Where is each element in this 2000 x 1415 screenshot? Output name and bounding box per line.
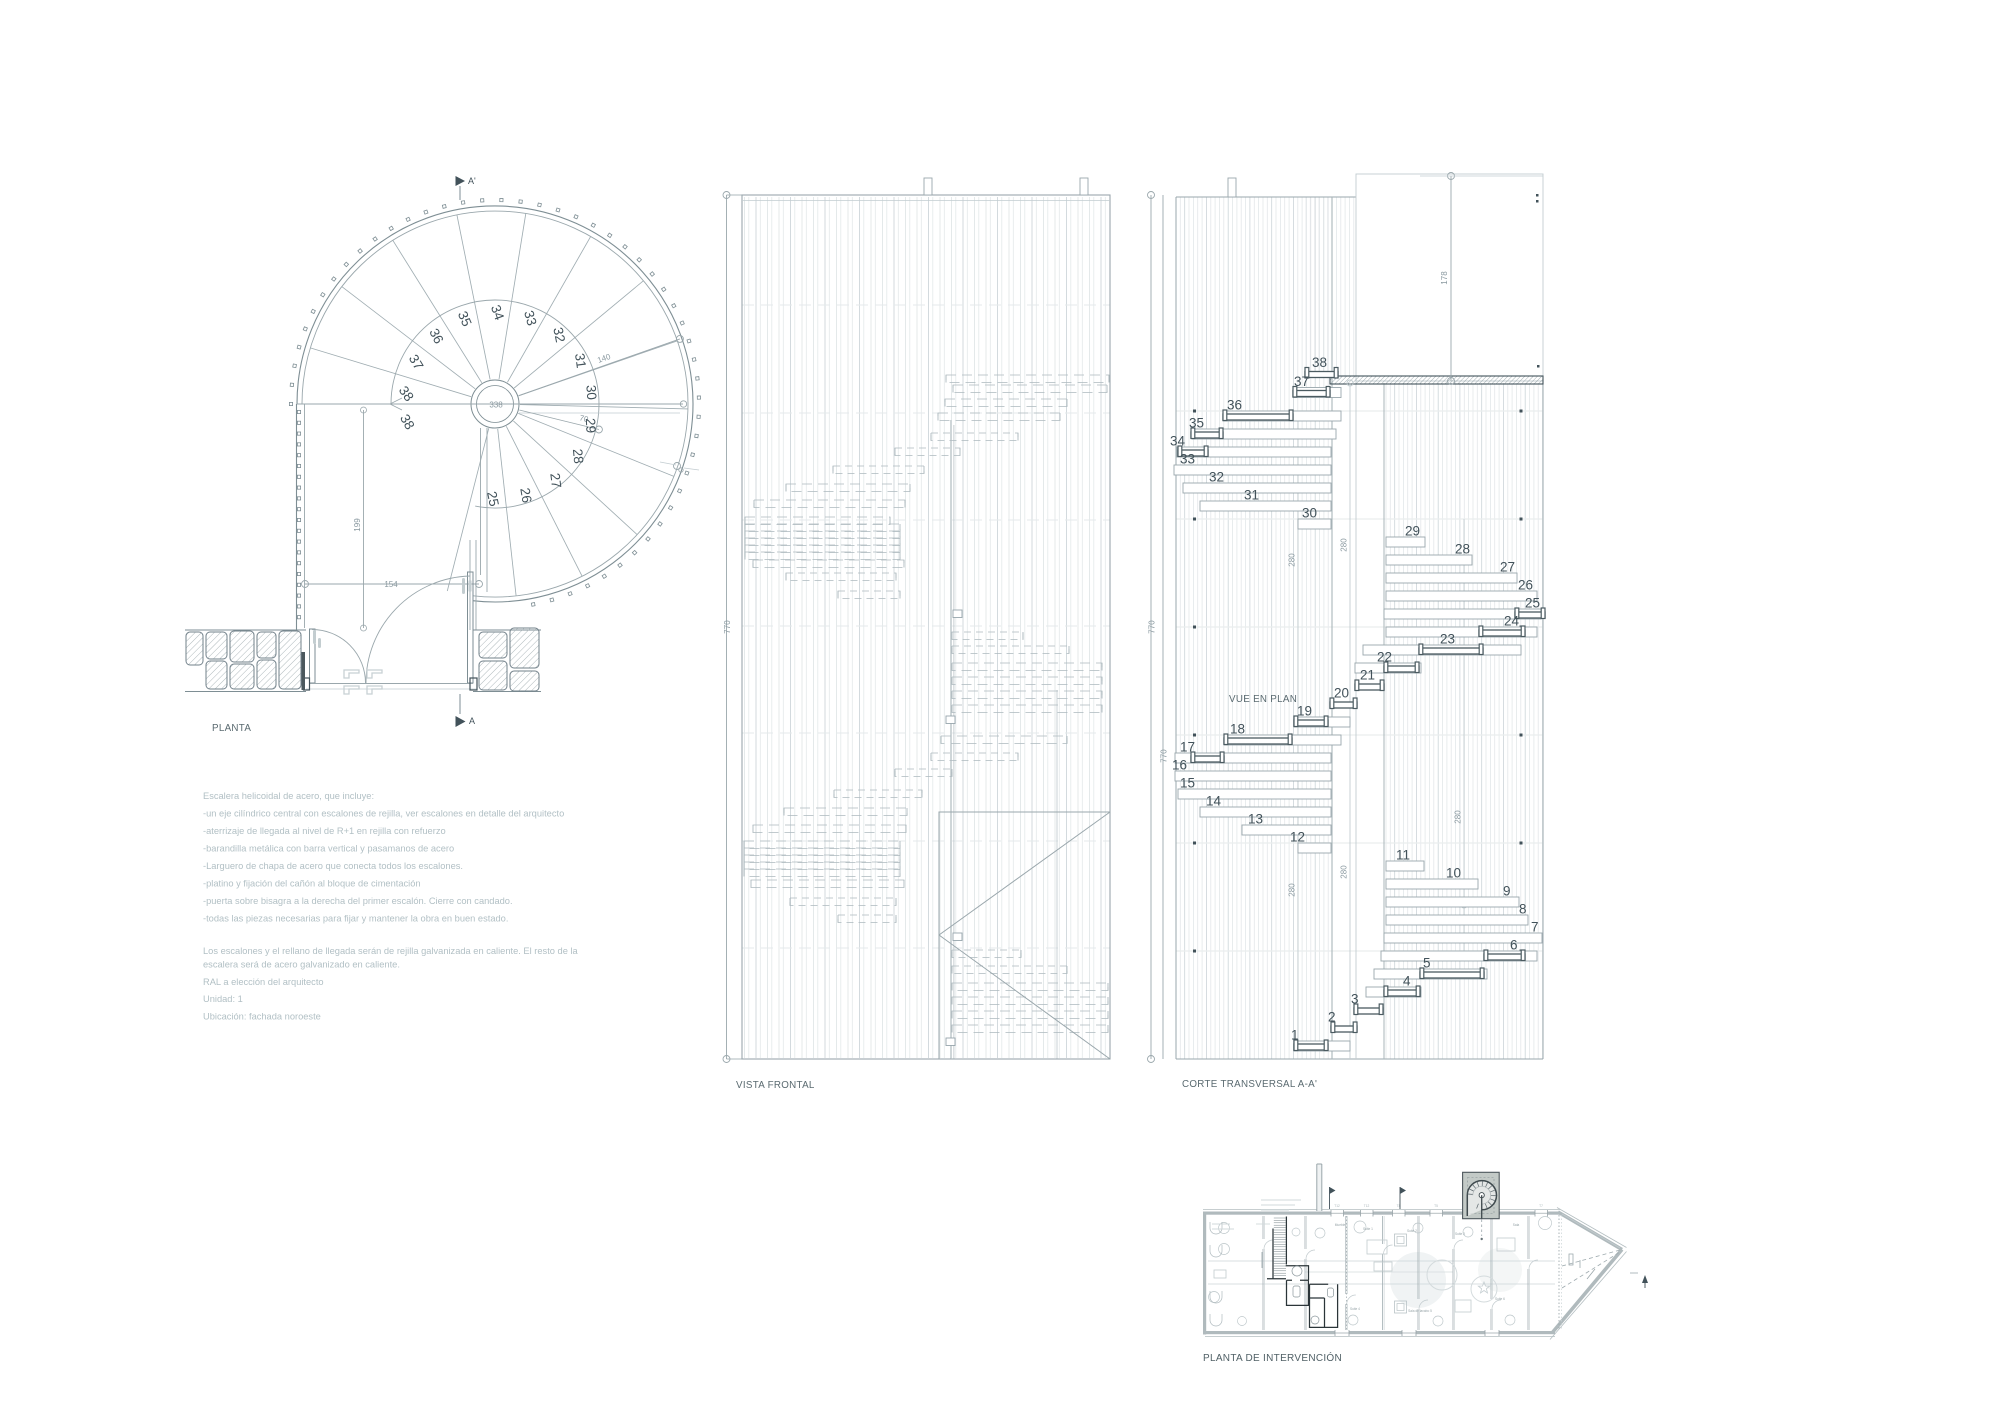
- svg-text:25: 25: [1525, 596, 1540, 611]
- svg-text:13: 13: [1248, 812, 1263, 827]
- svg-text:CORTE TRANSVERSAL A-A': CORTE TRANSVERSAL A-A': [1182, 1079, 1317, 1090]
- svg-text:17: 17: [1180, 740, 1195, 755]
- svg-text:199: 199: [353, 518, 362, 532]
- svg-text:32: 32: [550, 326, 568, 344]
- svg-text:770: 770: [1148, 620, 1157, 634]
- svg-text:26: 26: [517, 487, 534, 504]
- svg-text:Mueble: Mueble: [1335, 1223, 1346, 1227]
- svg-text:7: 7: [1531, 920, 1539, 935]
- svg-text:PLANTA: PLANTA: [212, 723, 251, 734]
- svg-text:338: 338: [489, 401, 503, 410]
- svg-text:Sala de lavabo 5: Sala de lavabo 5: [1408, 1309, 1432, 1313]
- svg-text:154: 154: [384, 580, 398, 589]
- svg-text:280: 280: [1454, 810, 1463, 824]
- svg-text:11: 11: [1396, 848, 1410, 863]
- svg-text:29: 29: [1405, 524, 1420, 539]
- svg-text:27: 27: [1500, 560, 1515, 575]
- svg-text:escalera será de acero galvani: escalera será de acero galvanizado en ca…: [203, 960, 400, 970]
- svg-text:23: 23: [1440, 632, 1455, 647]
- svg-text:Suite 2: Suite 2: [1407, 1229, 1417, 1233]
- svg-text:38: 38: [1312, 355, 1327, 370]
- svg-text:18: 18: [1230, 722, 1245, 737]
- svg-text:4: 4: [1403, 974, 1411, 989]
- svg-text:VISTA FRONTAL: VISTA FRONTAL: [736, 1080, 815, 1091]
- svg-text:16: 16: [1172, 758, 1187, 773]
- svg-text:Suite 1: Suite 1: [1363, 1227, 1373, 1231]
- svg-text:T12: T12: [1334, 1204, 1340, 1208]
- svg-text:6: 6: [1510, 938, 1518, 953]
- svg-text:770: 770: [1160, 749, 1169, 763]
- svg-text:Suite 6: Suite 6: [1495, 1297, 1505, 1301]
- svg-text:20: 20: [1334, 686, 1349, 701]
- svg-text:VUE EN PLAN: VUE EN PLAN: [1229, 694, 1297, 705]
- svg-text:24: 24: [1504, 614, 1520, 629]
- svg-text:32: 32: [1209, 470, 1224, 485]
- svg-text:33: 33: [1180, 452, 1195, 467]
- svg-text:280: 280: [1340, 865, 1349, 879]
- svg-text:T5: T5: [1434, 1204, 1438, 1208]
- svg-text:Unidad: 1: Unidad: 1: [203, 994, 243, 1004]
- svg-text:1: 1: [1291, 1028, 1299, 1043]
- svg-text:A': A': [468, 176, 476, 186]
- svg-text:31: 31: [572, 352, 589, 369]
- svg-text:-platino y fijación del cañón: -platino y fijación del cañón al bloque …: [203, 879, 421, 889]
- svg-text:28: 28: [1455, 542, 1470, 557]
- svg-text:30: 30: [583, 384, 599, 400]
- svg-text:280: 280: [1288, 883, 1297, 897]
- svg-text:14: 14: [1206, 794, 1222, 809]
- svg-text:-un eje cilíndrico central con: -un eje cilíndrico central con escalones…: [203, 809, 564, 819]
- svg-text:9: 9: [1503, 884, 1511, 899]
- svg-text:22: 22: [1377, 650, 1392, 665]
- svg-text:10: 10: [1446, 866, 1461, 881]
- svg-text:-puerta sobre bisagra a la der: -puerta sobre bisagra a la derecha del p…: [203, 896, 513, 906]
- svg-text:-barandilla metálica con barra: -barandilla metálica con barra vertical …: [203, 844, 454, 854]
- svg-text:-Larguero de chapa de acero qu: -Larguero de chapa de acero que conecta …: [203, 861, 463, 871]
- svg-text:Suite 4: Suite 4: [1350, 1307, 1360, 1311]
- svg-text:36: 36: [1227, 398, 1242, 413]
- svg-text:-todas las piezas necesarias p: -todas las piezas necesarias para fijar …: [203, 914, 508, 924]
- svg-text:T7: T7: [1539, 1204, 1543, 1208]
- svg-text:Ubicación: fachada noroeste: Ubicación: fachada noroeste: [203, 1012, 321, 1022]
- svg-text:A: A: [469, 716, 475, 726]
- svg-text:5: 5: [1423, 956, 1431, 971]
- svg-text:35: 35: [1189, 416, 1204, 431]
- svg-text:19: 19: [1297, 704, 1312, 719]
- svg-text:PLANTA DE INTERVENCIÓN: PLANTA DE INTERVENCIÓN: [1203, 1351, 1342, 1364]
- svg-text:Escalera helicoidal de acero,: Escalera helicoidal de acero, que incluy…: [203, 791, 374, 801]
- svg-text:12: 12: [1290, 830, 1305, 845]
- svg-text:178: 178: [1440, 271, 1449, 285]
- svg-text:26: 26: [1518, 578, 1533, 593]
- svg-text:27: 27: [547, 472, 564, 489]
- svg-text:34: 34: [1170, 434, 1186, 449]
- svg-text:RAL a elección del arquitecto: RAL a elección del arquitecto: [203, 977, 324, 987]
- svg-text:Sala: Sala: [1513, 1223, 1520, 1227]
- svg-text:15: 15: [1180, 776, 1195, 791]
- svg-text:30: 30: [1302, 506, 1317, 521]
- svg-text:29: 29: [583, 418, 599, 434]
- svg-text:37: 37: [1294, 374, 1309, 389]
- svg-text:280: 280: [1340, 538, 1349, 552]
- svg-text:770: 770: [723, 620, 732, 634]
- svg-text:21: 21: [1360, 668, 1375, 683]
- svg-text:31: 31: [1244, 488, 1259, 503]
- svg-text:280: 280: [1288, 553, 1297, 567]
- svg-text:2: 2: [1328, 1010, 1336, 1025]
- svg-text:Los escalones y el rellano de: Los escalones y el rellano de llegada se…: [203, 946, 579, 956]
- svg-text:-aterrizaje de llegada al nive: -aterrizaje de llegada al nivel de R+1 e…: [203, 826, 446, 836]
- svg-text:3: 3: [1351, 992, 1359, 1007]
- svg-text:T12: T12: [1364, 1204, 1370, 1208]
- svg-text:28: 28: [570, 448, 586, 464]
- svg-text:8: 8: [1519, 902, 1527, 917]
- svg-text:Suite 3: Suite 3: [1455, 1232, 1465, 1236]
